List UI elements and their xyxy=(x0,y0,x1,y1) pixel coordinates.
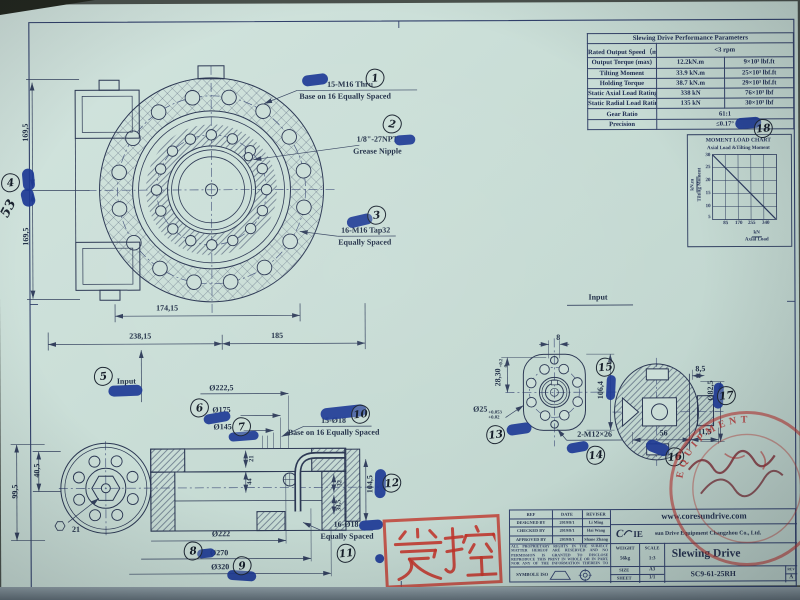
highlighter-mark xyxy=(606,375,616,400)
callout-15-dia18-note: Base on 16 Equally Spaced xyxy=(288,428,380,437)
dim-28-30: 28,30+0.20 xyxy=(493,359,509,387)
dim-dia-222: Ø222 xyxy=(212,529,230,538)
tb-symbole-iso: SYMBOLE ISO xyxy=(516,572,548,577)
tb-checked-date: 2019/8/1 xyxy=(560,528,575,533)
dim-56: 56 xyxy=(660,428,668,437)
photo-of-engineering-drawing: 15-M16 Thru Base on 16 Equally Spaced 1/… xyxy=(0,0,800,600)
title-block: REF DATE REVISER DESIGNED BY 2019/8/1 Li… xyxy=(509,508,796,582)
callout-grease-nipple: Grease Nipple xyxy=(353,146,402,155)
hex-across-flats-icon xyxy=(55,522,65,531)
tb-header-ref: REF xyxy=(527,512,536,517)
projection-target-icon xyxy=(578,568,592,582)
chart-y-tick: 5 xyxy=(708,215,711,220)
controlled-stamp: 受控 xyxy=(383,514,503,589)
input-label-flange: Input xyxy=(588,293,607,302)
dim-174-15: 174,15 xyxy=(156,303,178,312)
tb-designed-date: 2019/8/1 xyxy=(560,520,575,525)
tb-header-date: DATE xyxy=(561,512,573,517)
callout-2-m12: 2-M12×26 xyxy=(577,430,612,439)
highlighter-mark xyxy=(359,519,384,531)
dim-8-5: 8,5 xyxy=(695,364,705,373)
tb-size-label: SIZE xyxy=(619,568,629,573)
chart-title: MOMENT LOAD CHART xyxy=(706,137,771,143)
performance-table: Slewing Drive Performance Parameters Rat… xyxy=(587,32,794,130)
dim-8: 8 xyxy=(556,333,560,342)
dim-185: 185 xyxy=(271,331,283,340)
highlighter-mark xyxy=(375,554,384,563)
dim-33-5: 33,5 xyxy=(335,500,342,511)
chart-y-tick: 30 xyxy=(705,153,710,158)
grease-nipple-icon xyxy=(244,152,252,160)
dim-dia-145: Ø145 xyxy=(213,422,231,431)
tb-approved-name: Shane Zhang xyxy=(584,537,608,542)
tb-designed-name: Li Ming xyxy=(589,520,604,525)
dim-238-15: 238,15 xyxy=(129,332,151,341)
dim-32: 32 xyxy=(336,480,343,487)
chart-load-line xyxy=(712,154,775,219)
chart-x-tick: 255 xyxy=(748,221,756,226)
tb-header-reviser: REVISER xyxy=(586,512,606,517)
callout-equally-spaced: Equally Spaced xyxy=(338,238,391,247)
tb-part-number: SC9-61-25RH xyxy=(691,569,736,578)
moment-load-chart xyxy=(687,134,791,246)
chart-y-tick: 20 xyxy=(705,178,710,183)
drawing-paper: 15-M16 Thru Base on 16 Equally Spaced 1/… xyxy=(0,1,800,588)
callout-16-dia18-note: Equally Spaced xyxy=(320,532,373,541)
chart-subtitle: Axial Load &Tilting Moment xyxy=(707,146,770,151)
tb-scale-label: SCALE xyxy=(645,545,660,550)
dim-dia-320: Ø320 xyxy=(211,562,229,571)
tb-scale-value: 1:3 xyxy=(649,556,656,561)
chart-y-tick: 10 xyxy=(706,204,711,209)
dim-169-5-bottom: 169,5 xyxy=(21,228,30,246)
chart-x-tick: 340 xyxy=(762,221,770,226)
dim-44: 44 xyxy=(246,478,253,485)
tb-size-value: A3 xyxy=(649,567,655,572)
logo-swoosh-icon xyxy=(623,527,633,537)
dim-40-5: 40,5 xyxy=(32,464,41,478)
dim-11-5: 11,5 xyxy=(698,427,712,436)
company-logo: C IE xyxy=(616,527,643,540)
tb-company: sun Drive Equipment Changzhou Co., Ltd. xyxy=(655,530,761,536)
callout-npt: 1/8"-27NPT xyxy=(357,135,398,144)
dim-104-5: 104,5 xyxy=(365,475,374,493)
callout-16-dia18: 16-Ø18 xyxy=(334,520,359,529)
dim-21-hex: 21 xyxy=(72,525,80,534)
highlighter-mark xyxy=(394,134,416,146)
chart-x-axis-label: kNAxial Load xyxy=(745,230,769,242)
tb-weight-value: 56kg xyxy=(620,556,630,561)
chart-x-tick: 170 xyxy=(735,221,743,226)
tb-legal-text: ALL PROPRIETARY RIGHTS IN THE SUBJECT MA… xyxy=(511,544,608,565)
first-angle-projection-icon xyxy=(548,569,572,581)
dim-169-5-top: 169,5 xyxy=(21,124,30,142)
chart-y-tick: 15 xyxy=(706,191,711,196)
tb-product-title: Slewing Drive xyxy=(672,548,741,560)
dim-21: 21 xyxy=(248,455,255,462)
tb-sheet-value: 1/1 xyxy=(649,575,655,580)
tb-sheet-label: SHEET xyxy=(617,575,632,580)
chart-y-tick: 25 xyxy=(705,165,710,170)
highlighter-mark xyxy=(108,385,142,397)
tb-website: www.coresundrive.com xyxy=(661,510,746,520)
tb-checked-by: CHECKED BY xyxy=(517,528,545,533)
tb-checked-name: Hai Wang xyxy=(587,528,605,533)
dim-dia-25: Ø25+0.053+0.02 xyxy=(473,405,502,421)
front-view xyxy=(75,65,324,302)
chart-y-axis-label: kN.mTilting Moment xyxy=(690,168,702,202)
dim-106-4: 106,4 xyxy=(596,381,605,399)
tb-approved-by: APPROVED BY xyxy=(516,537,546,542)
dim-dia-222-5: Ø222,5 xyxy=(209,383,233,392)
tb-rev-value: A xyxy=(789,574,793,580)
callout-base-on-16: Base on 16 Equally Spaced xyxy=(299,92,391,101)
tb-approved-date: 2019/8/1 xyxy=(560,537,575,542)
tb-rev-label: REV xyxy=(787,567,795,571)
photo-table-edge xyxy=(0,587,800,600)
tb-designed-by: DESIGNED BY xyxy=(517,520,546,525)
tb-weight-label: WEIGHT xyxy=(616,545,635,550)
chart-x-tick: 85 xyxy=(723,221,728,226)
dim-99-5: 99,5 xyxy=(10,485,19,499)
